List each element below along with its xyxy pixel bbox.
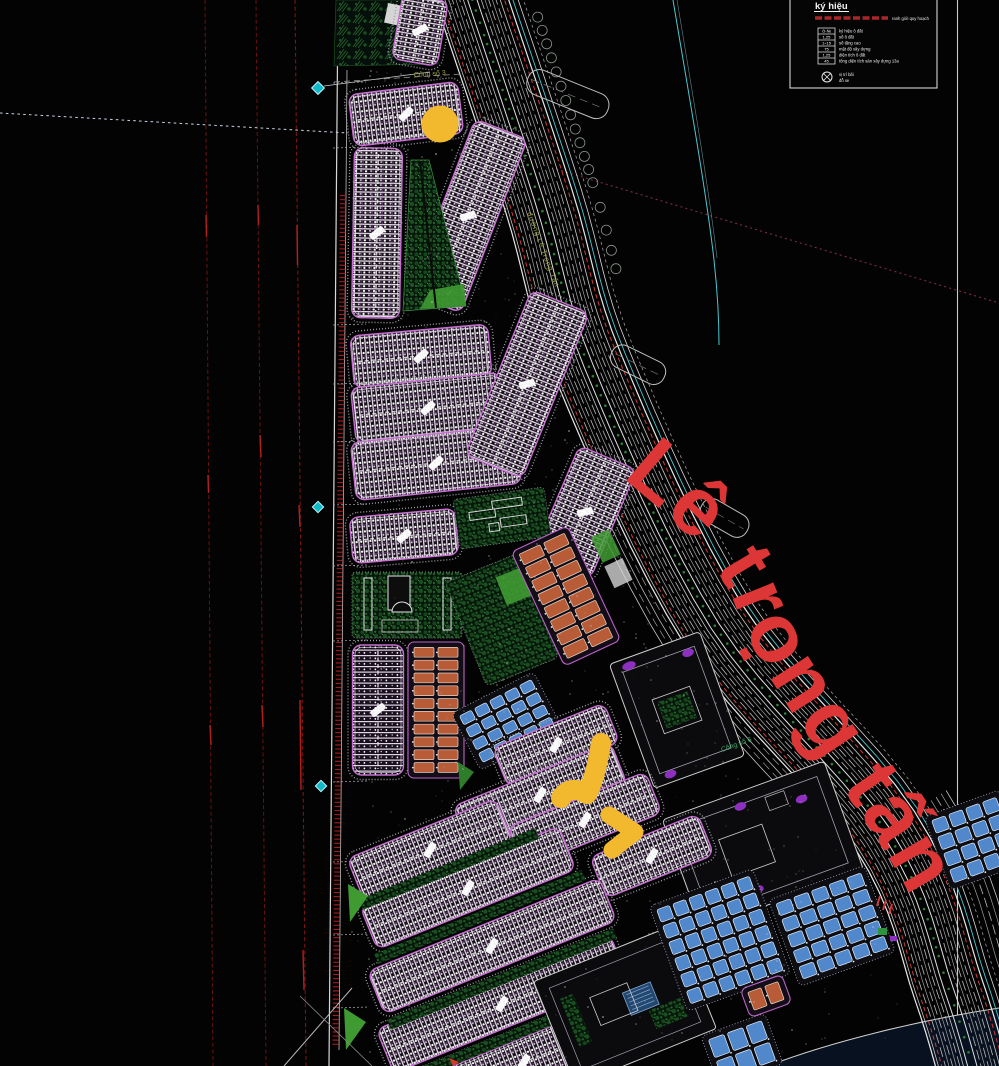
svg-text:ký hiệu ô đất: ký hiệu ô đất: [839, 29, 864, 34]
svg-text:diện tích ô đất: diện tích ô đất: [839, 53, 866, 58]
svg-text:mật độ xây dựng: mật độ xây dựng: [839, 47, 871, 52]
svg-text:45: 45: [824, 59, 829, 64]
svg-text:số tầng cao: số tầng cao: [839, 41, 861, 46]
svg-text:Ô-№: Ô-№: [822, 29, 831, 34]
svg-text:ký hiệu: ký hiệu: [815, 1, 848, 12]
svg-text:tổng diện tích sàn xây dựng 13: tổng diện tích sàn xây dựng 13a: [839, 59, 900, 64]
svg-text:1,25: 1,25: [823, 53, 832, 58]
svg-text:vị trí bãi: vị trí bãi: [839, 72, 854, 77]
svg-text:số ô đất: số ô đất: [839, 35, 855, 40]
svg-text:1÷15: 1÷15: [822, 41, 832, 46]
svg-text:1,25: 1,25: [823, 35, 832, 40]
svg-text:75: 75: [824, 47, 829, 52]
svg-text:ranh giới quy hoạch: ranh giới quy hoạch: [892, 16, 930, 21]
svg-text:đỗ xe: đỗ xe: [839, 78, 850, 83]
